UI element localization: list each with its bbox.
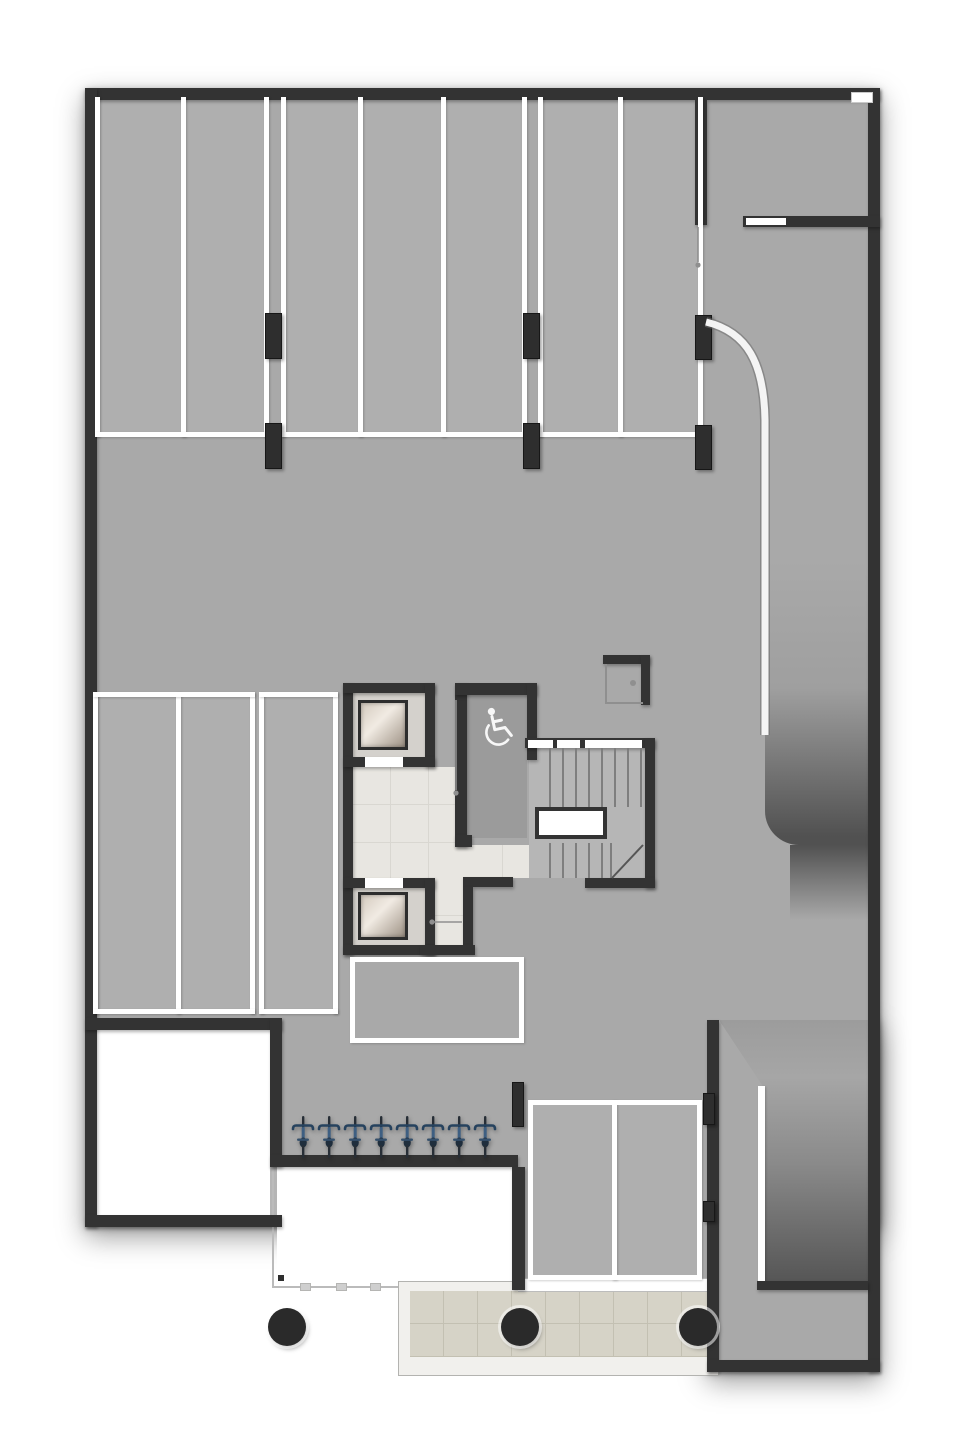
stall-line-v (264, 97, 269, 437)
top-stall-group-b-fill (281, 97, 527, 437)
core-corridor-right (463, 887, 473, 945)
stair-tread (640, 748, 642, 807)
round-column (679, 1308, 717, 1346)
storage-bay-outline (350, 957, 524, 1043)
lobby-marble-floor (465, 845, 529, 878)
stall-line-h (93, 692, 255, 697)
elevator-cab (358, 700, 408, 750)
stall-line-v (522, 97, 527, 437)
stall-line-v (176, 692, 181, 1014)
closet-line-left (605, 664, 607, 704)
ramp-gradient-fade (790, 845, 868, 920)
bicycle-icon (395, 1116, 419, 1158)
pier-column (703, 1093, 715, 1125)
pier-column (523, 313, 540, 359)
room-south-left-edge (272, 1167, 274, 1288)
wall-right (868, 88, 880, 1372)
core-corridor-bottom (420, 945, 475, 955)
stair-flight-divider (610, 843, 612, 878)
unexcavated-room-west (97, 1030, 270, 1215)
core-wc-stub (455, 835, 472, 847)
stair-tread (549, 843, 551, 878)
stair-tread (549, 748, 551, 807)
bicycle-icon (291, 1116, 315, 1158)
door-handle-icon (630, 680, 636, 686)
garage-facade-band (518, 1278, 714, 1292)
lobby-marble-floor (353, 767, 465, 878)
stair-tread (575, 748, 577, 807)
stall-line-h (93, 1009, 255, 1014)
pier-column (523, 423, 540, 469)
wall-top (85, 88, 880, 100)
stair-tread (575, 843, 577, 878)
stall-line-v (358, 97, 363, 437)
bicycle-icon (473, 1116, 497, 1158)
stall-line-v (441, 97, 446, 437)
stair-landing (535, 807, 607, 839)
bicycle-icon (317, 1116, 341, 1158)
stall-line-v (698, 97, 703, 437)
stair-tread (627, 748, 629, 807)
wall-extension-inner (757, 1281, 868, 1290)
stair-door-opening-3 (585, 740, 642, 748)
pier-column (695, 425, 712, 470)
core-wc-right (527, 683, 537, 760)
stair-tread (614, 748, 616, 807)
wall-extension-bottom (707, 1360, 880, 1372)
stair-tread (601, 843, 603, 878)
core-shaft1-right (425, 683, 435, 767)
bicycle-icon (421, 1116, 445, 1158)
edge-tick (300, 1283, 311, 1291)
core-shaft2-right (425, 878, 435, 955)
parking-garage-floor-plan (0, 0, 963, 1440)
round-column (268, 1308, 306, 1346)
bicycle-icon (317, 1116, 341, 1158)
entry-paving-tiles (410, 1291, 712, 1357)
stall-line-v (538, 97, 543, 437)
core-wall-left (343, 683, 353, 955)
wall-bottom-left (85, 1215, 282, 1227)
wall-room-west-right (270, 1018, 282, 1167)
stair-tread (562, 843, 564, 878)
corner-marker (275, 1272, 287, 1284)
elevator-cab (358, 892, 408, 940)
south-stalls-outline (528, 1100, 702, 1280)
round-column (501, 1308, 539, 1346)
unexcavated-room-south (277, 1167, 512, 1288)
stall-line-v (95, 97, 100, 437)
stair-tread (588, 843, 590, 878)
stair-door-opening-1 (528, 740, 553, 748)
pier-column (695, 315, 712, 360)
wall-room-south-right (512, 1167, 525, 1290)
pier-column (265, 423, 282, 469)
bicycle-icon (447, 1116, 471, 1158)
stall-line-v (250, 692, 255, 1014)
bicycle-icon (447, 1116, 471, 1158)
stall-line-v (181, 97, 186, 437)
edge-tick (370, 1283, 381, 1291)
bicycle-icon (421, 1116, 445, 1158)
elevator1-door-opening (365, 757, 403, 767)
bicycle-icon (473, 1116, 497, 1158)
ramp-white-edge (758, 1086, 765, 1283)
wall-room-west-top (85, 1018, 282, 1030)
core-corridor-top (463, 877, 513, 887)
pier-column (265, 313, 282, 359)
core-wc-top (455, 683, 537, 695)
stall-line-v (259, 692, 264, 1014)
stair-tread (562, 748, 564, 807)
closet-wall-right (641, 655, 650, 705)
stall-line-h (259, 1009, 338, 1014)
stair-tread (588, 748, 590, 807)
core-stair-bottom (585, 878, 655, 888)
bicycle-icon (395, 1116, 419, 1158)
pier-column (512, 1082, 524, 1127)
stall-line-v (333, 692, 338, 1014)
stall-line-h (538, 432, 703, 437)
mid-left-stall3-fill (259, 692, 338, 1014)
elevator2-door-opening (365, 878, 403, 888)
stall-line-v (618, 97, 623, 437)
stall-line-h (95, 432, 269, 437)
edge-tick (336, 1283, 347, 1291)
stair-tread (601, 748, 603, 807)
ramp-gradient-upper (765, 560, 868, 845)
stair-door-opening-2 (557, 740, 580, 748)
stall-line-h (281, 432, 527, 437)
bicycle-icon (343, 1116, 367, 1158)
bicycle-icon (291, 1116, 315, 1158)
bicycle-icon (343, 1116, 367, 1158)
core-shaft1-top (343, 683, 435, 693)
bicycle-icon (369, 1116, 393, 1158)
facade-notch-opening (851, 92, 873, 103)
core-stair-right (645, 738, 655, 888)
topright-room-door (746, 218, 786, 225)
stall-line-v (93, 692, 98, 1014)
closet-line-bottom (605, 702, 643, 704)
bicycle-icon (369, 1116, 393, 1158)
stall-line-v (281, 97, 286, 437)
core-wc-left (455, 683, 467, 847)
stall-line-h (259, 692, 338, 697)
pier-column (703, 1201, 715, 1222)
